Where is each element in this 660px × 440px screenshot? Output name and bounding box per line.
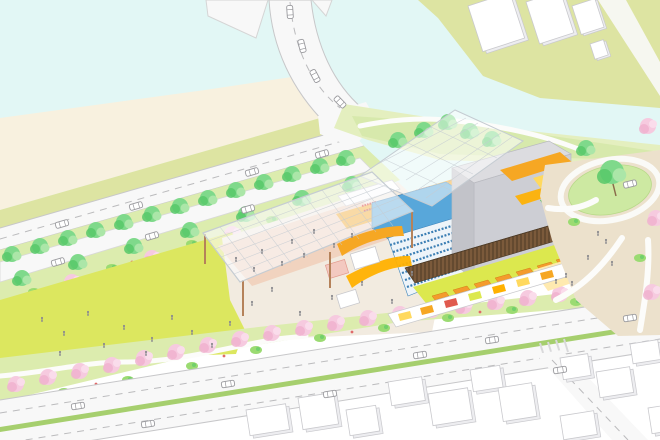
building-block (388, 376, 429, 408)
site-rendering-canvas (0, 0, 660, 440)
bush-icon (250, 346, 262, 354)
car-icon (287, 5, 294, 18)
bush-icon (378, 324, 390, 332)
bush-icon (442, 314, 454, 322)
building-block (560, 410, 601, 440)
bush-icon (314, 334, 326, 342)
building-block (428, 387, 476, 428)
building-block (596, 366, 637, 400)
site-rendering (0, 0, 660, 440)
bush-icon (634, 254, 646, 262)
building-block (498, 382, 540, 424)
building-block (648, 404, 660, 437)
building-block (630, 339, 660, 367)
building-block (298, 392, 342, 433)
bush-icon (568, 218, 580, 226)
building-block (346, 405, 383, 439)
building-block (246, 403, 293, 438)
bush-icon (506, 306, 518, 314)
